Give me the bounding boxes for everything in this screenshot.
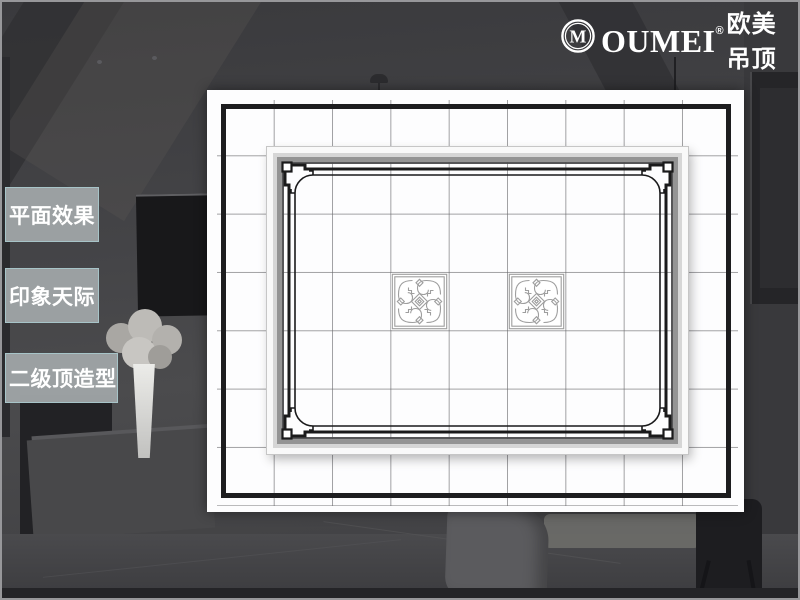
brand-name-latin-text: OUMEI	[601, 23, 716, 59]
ornament-pattern-icon	[508, 273, 565, 330]
sidebar-item-impression-sky[interactable]: 印象天际	[5, 268, 99, 323]
sidebar-item-flat-effect[interactable]: 平面效果	[5, 187, 99, 242]
sidebar-item-label: 二级顶造型	[9, 363, 117, 393]
brand-logo: M OUMEI® 欧美吊顶	[560, 16, 798, 56]
ornament-tile	[391, 273, 448, 330]
ornament-pattern-icon	[391, 273, 448, 330]
bg-cabinet	[27, 428, 216, 540]
decorative-border	[267, 147, 688, 454]
bg-downlight	[152, 56, 157, 60]
bg-tv	[136, 193, 210, 316]
bg-downlight	[97, 60, 102, 64]
second-level-ceiling-panel	[267, 147, 688, 454]
slide-canvas: M OUMEI® 欧美吊顶 平面效果 印象天际 二级顶造型	[0, 0, 800, 600]
bg-bottom-strip	[2, 588, 800, 600]
registered-mark: ®	[716, 25, 724, 37]
brand-name-chinese: 欧美吊顶	[727, 4, 798, 74]
bg-pendant-lamp	[370, 74, 388, 83]
ceiling-plan-panel	[207, 90, 744, 512]
brand-mark-icon: M	[560, 18, 596, 54]
sidebar-item-label: 平面效果	[9, 200, 95, 230]
brand-mark-letter: M	[570, 27, 587, 47]
bg-lamp-cord	[674, 57, 676, 90]
bg-picture-frame-inner	[760, 88, 800, 288]
sidebar-item-label: 印象天际	[9, 281, 95, 311]
bg-drape-cloth	[444, 504, 549, 600]
brand-name-latin: OUMEI®	[601, 11, 724, 61]
bg-rug	[544, 514, 700, 548]
sidebar-item-second-level-ceiling[interactable]: 二级顶造型	[5, 353, 118, 403]
ornament-tile	[508, 273, 565, 330]
